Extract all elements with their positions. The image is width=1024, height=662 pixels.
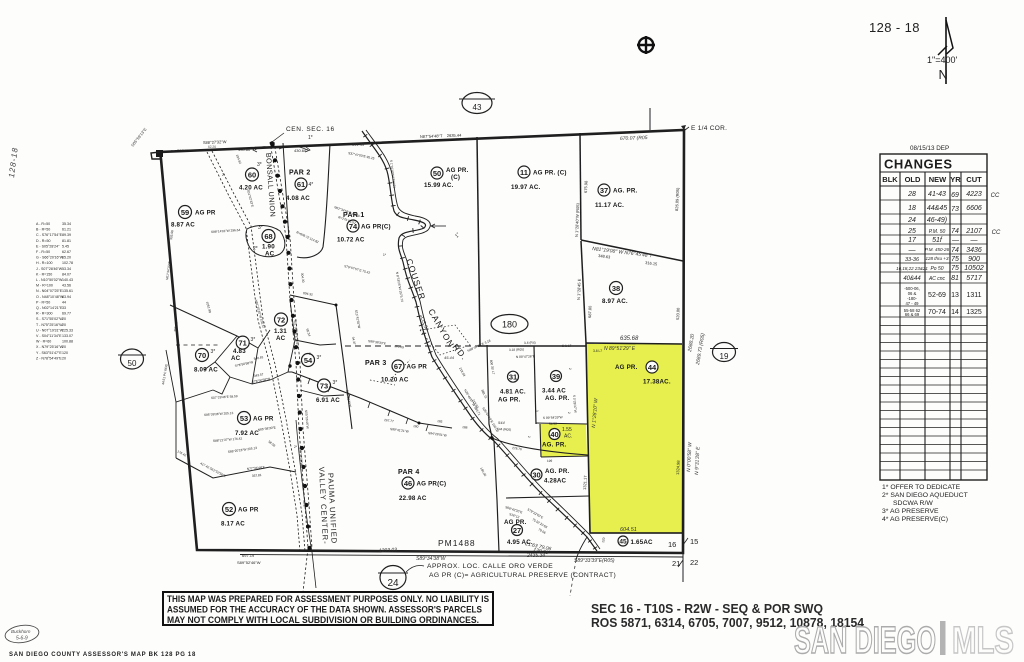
svg-text:70-74: 70-74 bbox=[928, 309, 946, 316]
svg-text:59: 59 bbox=[181, 208, 189, 217]
svg-text:72: 72 bbox=[277, 315, 285, 324]
svg-text:15: 15 bbox=[690, 537, 698, 546]
svg-text:37: 37 bbox=[600, 186, 608, 195]
svg-text:Z - N78°54'49"E: Z - N78°54'49"E bbox=[36, 356, 62, 360]
svg-text:13: 13 bbox=[951, 292, 959, 299]
svg-text:N 88°47'26"E: N 88°47'26"E bbox=[516, 354, 535, 359]
svg-text:39: 39 bbox=[552, 372, 560, 381]
svg-text:V - S04°11'34"E: V - S04°11'34"E bbox=[36, 334, 62, 338]
svg-text:11: 11 bbox=[520, 168, 528, 177]
svg-text:44: 44 bbox=[648, 363, 657, 372]
svg-text:62.26: 62.26 bbox=[208, 145, 216, 149]
svg-text:4.08 AC: 4.08 AC bbox=[286, 195, 310, 202]
svg-text:S 89°54'29"W: S 89°54'29"W bbox=[543, 415, 563, 420]
svg-text:MLS: MLS bbox=[952, 620, 1014, 662]
svg-text:20: 20 bbox=[62, 356, 66, 360]
svg-text:180: 180 bbox=[502, 320, 517, 330]
svg-text:43: 43 bbox=[473, 103, 482, 112]
svg-text:544: 544 bbox=[498, 420, 505, 425]
svg-text:4*: 4* bbox=[309, 182, 314, 188]
svg-text:1* OFFER TO DEDICATE: 1* OFFER TO DEDICATE bbox=[882, 484, 961, 491]
svg-text:43.56: 43.56 bbox=[62, 284, 71, 288]
svg-text:3*: 3* bbox=[333, 380, 338, 386]
svg-text:L - N10°50'02"W: L - N10°50'02"W bbox=[36, 278, 63, 282]
svg-text:35.34: 35.34 bbox=[62, 222, 71, 226]
svg-text:AC: AC bbox=[265, 251, 275, 258]
svg-text:3.44 AC: 3.44 AC bbox=[542, 388, 566, 395]
svg-text:16: 16 bbox=[668, 540, 676, 549]
svg-text:69: 69 bbox=[951, 192, 959, 199]
svg-text:74: 74 bbox=[951, 247, 959, 254]
svg-text:N: N bbox=[939, 67, 948, 82]
svg-text:15.99 AC.: 15.99 AC. bbox=[424, 182, 454, 189]
svg-text:G - S66°20'16"W: G - S66°20'16"W bbox=[36, 256, 64, 260]
svg-text:BLK: BLK bbox=[882, 175, 898, 184]
svg-text:3*: 3* bbox=[211, 349, 216, 355]
svg-text:675.98: 675.98 bbox=[583, 180, 588, 193]
svg-text:PAR 4: PAR 4 bbox=[398, 469, 420, 476]
svg-text:1321.17: 1321.17 bbox=[582, 475, 588, 490]
svg-text:65.20: 65.20 bbox=[62, 256, 71, 260]
svg-text:(C): (C) bbox=[451, 174, 460, 181]
svg-text:60.17: 60.17 bbox=[302, 500, 307, 509]
svg-text:53: 53 bbox=[240, 414, 248, 423]
svg-text:61: 61 bbox=[297, 180, 305, 189]
svg-text:1.65AC: 1.65AC bbox=[631, 539, 654, 546]
svg-text:Po 50: Po 50 bbox=[930, 266, 943, 272]
svg-text:128 thru +3: 128 thru +3 bbox=[926, 256, 949, 261]
svg-text:AG PR (C)= AGRICULTURAL PRESE: AG PR (C)= AGRICULTURAL PRESERVE (CONTRA… bbox=[429, 572, 616, 579]
svg-text:61.21: 61.21 bbox=[62, 228, 71, 232]
svg-text:697.19: 697.19 bbox=[242, 553, 255, 558]
svg-text:30: 30 bbox=[532, 470, 540, 479]
svg-text:AG PR. (C): AG PR. (C) bbox=[533, 170, 567, 177]
svg-text:AG PR(C): AG PR(C) bbox=[417, 481, 447, 488]
svg-text:21: 21 bbox=[672, 559, 680, 568]
svg-text:75: 75 bbox=[951, 256, 959, 263]
svg-text:PAR 2: PAR 2 bbox=[289, 170, 311, 177]
svg-text:AG. PR.: AG. PR. bbox=[545, 468, 570, 475]
svg-text:54: 54 bbox=[304, 356, 313, 365]
svg-text:81.81: 81.81 bbox=[62, 239, 71, 243]
svg-text:CEN. SEC. 16: CEN. SEC. 16 bbox=[286, 126, 335, 133]
svg-text:NEW: NEW bbox=[929, 175, 947, 184]
svg-text:17.38AC.: 17.38AC. bbox=[643, 379, 671, 386]
svg-text:1203.03: 1203.03 bbox=[379, 547, 398, 554]
svg-text:544 (R05): 544 (R05) bbox=[497, 427, 511, 432]
svg-text:70: 70 bbox=[198, 351, 206, 360]
svg-text:4.83: 4.83 bbox=[233, 348, 246, 355]
svg-text:S89°34'38"W: S89°34'38"W bbox=[416, 556, 447, 562]
svg-text:102.78: 102.78 bbox=[62, 261, 73, 265]
svg-text:520.00: 520.00 bbox=[675, 307, 681, 320]
svg-text:AG PR.: AG PR. bbox=[446, 167, 469, 174]
svg-text:81: 81 bbox=[951, 275, 959, 282]
svg-text:4* AG PRESERVE(C): 4* AG PRESERVE(C) bbox=[882, 516, 948, 523]
svg-text:260.08: 260.08 bbox=[177, 148, 190, 153]
svg-text:1.90: 1.90 bbox=[262, 244, 275, 251]
svg-text:YR: YR bbox=[950, 175, 961, 184]
svg-text:3436: 3436 bbox=[966, 247, 982, 254]
svg-text:1.55: 1.55 bbox=[562, 427, 572, 433]
svg-text:66 & 69: 66 & 69 bbox=[905, 312, 920, 317]
svg-text:—: — bbox=[951, 237, 960, 244]
svg-text:MAY NOT COMPLY WITH LOCAL SUBD: MAY NOT COMPLY WITH LOCAL SUBDIVISION OR… bbox=[167, 615, 479, 625]
svg-text:62.67: 62.67 bbox=[62, 250, 71, 254]
svg-text:10.72 AC: 10.72 AC bbox=[337, 237, 365, 244]
svg-text:430.60: 430.60 bbox=[238, 147, 251, 152]
svg-text:—: — bbox=[970, 237, 979, 244]
svg-text:41-43: 41-43 bbox=[928, 191, 946, 198]
svg-text:135.61: 135.61 bbox=[62, 289, 73, 293]
svg-text:51f: 51f bbox=[932, 237, 943, 244]
svg-text:52-69: 52-69 bbox=[928, 292, 946, 299]
svg-text:10502: 10502 bbox=[964, 265, 984, 272]
svg-text:63.94: 63.94 bbox=[62, 295, 71, 299]
svg-text:AG PR: AG PR bbox=[195, 210, 216, 217]
svg-text:44: 44 bbox=[62, 300, 66, 304]
svg-text:24: 24 bbox=[387, 578, 399, 589]
svg-text:4223: 4223 bbox=[966, 191, 982, 198]
svg-text:8.87 AC: 8.87 AC bbox=[171, 222, 195, 229]
svg-text:SAN DIEGO: SAN DIEGO bbox=[794, 620, 936, 662]
svg-text:1"=400': 1"=400' bbox=[927, 55, 957, 65]
svg-text:31: 31 bbox=[509, 373, 517, 382]
svg-text:M - R=100: M - R=100 bbox=[36, 284, 53, 288]
svg-text:THIS MAP WAS PREPARED FOR ASSE: THIS MAP WAS PREPARED FOR ASSESSMENT PUR… bbox=[167, 594, 489, 604]
svg-text:PAR 3: PAR 3 bbox=[365, 360, 387, 367]
svg-text:AG. PR.: AG. PR. bbox=[545, 395, 570, 402]
svg-text:16,18,22 23&21: 16,18,22 23&21 bbox=[896, 266, 928, 271]
svg-text:128 - 18: 128 - 18 bbox=[869, 20, 920, 35]
svg-text:S - S71°55'02"W: S - S71°55'02"W bbox=[36, 317, 63, 321]
svg-text:24: 24 bbox=[907, 217, 916, 224]
svg-text:U - N07°19'31"W: U - N07°19'31"W bbox=[36, 328, 64, 332]
svg-text:3.18 (R05): 3.18 (R05) bbox=[509, 347, 524, 352]
svg-text:50: 50 bbox=[128, 359, 137, 368]
svg-text:H - R=100: H - R=100 bbox=[36, 261, 52, 265]
svg-text:APPROX. LOC. CALLE ORO VER: APPROX. LOC. CALLE ORO VERDE bbox=[427, 563, 553, 570]
svg-text:4.81 AC.: 4.81 AC. bbox=[500, 389, 526, 396]
svg-text:40&44: 40&44 bbox=[903, 276, 921, 282]
svg-text:18: 18 bbox=[908, 205, 916, 212]
svg-text:141.43: 141.43 bbox=[352, 142, 365, 147]
svg-text:2*: 2* bbox=[253, 246, 258, 252]
svg-text:O - N48°10'48"W: O - N48°10'48"W bbox=[36, 295, 64, 299]
svg-text:4.28AC: 4.28AC bbox=[544, 478, 567, 485]
svg-text:2107: 2107 bbox=[965, 228, 983, 235]
svg-text:71: 71 bbox=[239, 338, 247, 347]
svg-text:47 - 49: 47 - 49 bbox=[905, 301, 919, 306]
svg-text:52: 52 bbox=[225, 505, 233, 514]
svg-text:08/15/13 DEP: 08/15/13 DEP bbox=[910, 145, 949, 152]
svg-text:8.09 AC: 8.09 AC bbox=[194, 367, 218, 374]
svg-text:CC: CC bbox=[991, 193, 1000, 199]
svg-text:AC.: AC. bbox=[564, 434, 572, 440]
svg-text:N 1°28'45 E: N 1°28'45 E bbox=[576, 278, 582, 300]
svg-text:AG PR.: AG PR. bbox=[498, 397, 521, 404]
svg-text:100.88: 100.88 bbox=[62, 340, 73, 344]
svg-text:140.43: 140.43 bbox=[62, 278, 73, 282]
svg-text:6.91 AC: 6.91 AC bbox=[316, 397, 340, 404]
svg-text:AC: AC bbox=[231, 355, 241, 362]
svg-text:14: 14 bbox=[951, 309, 959, 316]
svg-text:3*: 3* bbox=[258, 225, 263, 231]
svg-text:D - R=50: D - R=50 bbox=[36, 239, 50, 243]
svg-text:A - R=50: A - R=50 bbox=[36, 222, 50, 226]
svg-text:CUT: CUT bbox=[966, 175, 982, 184]
svg-text:1325: 1325 bbox=[966, 309, 982, 316]
svg-text:W - R=60: W - R=60 bbox=[36, 340, 51, 344]
svg-text:3*: 3* bbox=[251, 337, 256, 343]
svg-text:84.07: 84.07 bbox=[62, 272, 71, 276]
svg-text:N 89°51'29" E: N 89°51'29" E bbox=[604, 346, 636, 352]
svg-text:8.97 AC.: 8.97 AC. bbox=[602, 298, 628, 305]
svg-text:CC: CC bbox=[992, 230, 1001, 236]
svg-text:CHANGES: CHANGES bbox=[884, 157, 953, 172]
svg-text:3-6 (R4): 3-6 (R4) bbox=[524, 341, 536, 345]
svg-text:AC: AC bbox=[276, 335, 286, 342]
svg-text:R - R=300: R - R=300 bbox=[36, 312, 52, 316]
svg-text:45: 45 bbox=[619, 539, 627, 546]
svg-text:27: 27 bbox=[513, 526, 521, 535]
svg-text:3* AG PRESERVE: 3* AG PRESERVE bbox=[882, 508, 939, 515]
svg-text:E 1/4 COR.: E 1/4 COR. bbox=[691, 125, 727, 132]
svg-text:44&45: 44&45 bbox=[927, 205, 947, 212]
svg-text:60: 60 bbox=[248, 170, 256, 179]
svg-text:AC cnc: AC cnc bbox=[928, 276, 946, 282]
svg-text:199: 199 bbox=[547, 459, 553, 463]
svg-text:5.45: 5.45 bbox=[62, 244, 69, 248]
svg-text:11.17 AC.: 11.17 AC. bbox=[595, 202, 624, 209]
svg-text:10.20 AC: 10.20 AC bbox=[381, 377, 409, 384]
svg-text:C - S76°17'54"E: C - S76°17'54"E bbox=[36, 233, 63, 237]
svg-text:46-49): 46-49) bbox=[927, 217, 947, 224]
svg-text:Buckhorn: Buckhorn bbox=[11, 629, 31, 634]
svg-text:74: 74 bbox=[951, 228, 959, 235]
svg-text:687.80: 687.80 bbox=[587, 305, 592, 318]
svg-text:68: 68 bbox=[264, 232, 272, 241]
svg-text:20: 20 bbox=[62, 345, 66, 349]
svg-text:33-36: 33-36 bbox=[905, 257, 920, 263]
svg-text:P - R=50: P - R=50 bbox=[36, 300, 50, 304]
svg-text:AG PR: AG PR bbox=[407, 364, 428, 371]
svg-text:S89°33'39"E(R05): S89°33'39"E(R05) bbox=[574, 558, 615, 564]
svg-text:E - S05°28'24": E - S05°28'24" bbox=[36, 244, 60, 248]
svg-text:40: 40 bbox=[550, 430, 558, 439]
svg-text:Y - S63°51'47"E: Y - S63°51'47"E bbox=[36, 351, 62, 355]
svg-text:1.31: 1.31 bbox=[274, 328, 287, 335]
svg-text:73: 73 bbox=[951, 206, 959, 213]
svg-text:AG. PR.: AG. PR. bbox=[613, 188, 638, 195]
svg-text:89.39: 89.39 bbox=[62, 233, 71, 237]
svg-text:1*: 1* bbox=[308, 135, 313, 141]
svg-text:PM1488: PM1488 bbox=[438, 538, 476, 548]
svg-text:N - N04°07'25"E: N - N04°07'25"E bbox=[36, 289, 63, 293]
svg-text:133.07: 133.07 bbox=[62, 334, 73, 338]
svg-text:53.34: 53.34 bbox=[62, 267, 71, 271]
svg-text:50: 50 bbox=[433, 169, 441, 178]
svg-text:S-1 L7: S-1 L7 bbox=[562, 344, 572, 348]
svg-text:20: 20 bbox=[62, 323, 66, 327]
svg-text:AG PR.: AG PR. bbox=[615, 364, 638, 371]
svg-text:X - N79°25'16"W: X - N79°25'16"W bbox=[36, 345, 64, 349]
svg-text:K - R=150: K - R=150 bbox=[36, 272, 52, 276]
svg-text:33: 33 bbox=[62, 306, 66, 310]
svg-text:P.M. 50: P.M. 50 bbox=[929, 229, 946, 235]
svg-text:Q - N02°14'21"E: Q - N02°14'21"E bbox=[36, 306, 63, 310]
svg-text:1311: 1311 bbox=[966, 292, 981, 299]
svg-text:900: 900 bbox=[968, 256, 980, 263]
svg-text:5-6-9: 5-6-9 bbox=[16, 636, 28, 642]
svg-text:19.97 AC.: 19.97 AC. bbox=[511, 184, 541, 191]
svg-text:AG PR: AG PR bbox=[253, 416, 274, 423]
svg-text:17: 17 bbox=[908, 237, 917, 244]
svg-text:SAN DIEGO COUNTY ASSESSOR'S MA: SAN DIEGO COUNTY ASSESSOR'S MAP BK 128 P… bbox=[9, 651, 196, 658]
svg-text:73: 73 bbox=[320, 381, 328, 390]
svg-text:28: 28 bbox=[907, 191, 916, 198]
svg-text:69.77: 69.77 bbox=[62, 312, 71, 316]
svg-text:3*: 3* bbox=[317, 355, 322, 361]
svg-text:19: 19 bbox=[720, 352, 729, 361]
svg-text:670.07 (R05: 670.07 (R05 bbox=[620, 135, 648, 142]
svg-text:SEC 16 - T10S - R2W - SEQ & PO: SEC 16 - T10S - R2W - SEQ & POR SWQ bbox=[591, 601, 823, 616]
svg-text:SDCWA R/W: SDCWA R/W bbox=[893, 500, 933, 507]
svg-text:75: 75 bbox=[951, 265, 959, 272]
svg-text:22.98 AC: 22.98 AC bbox=[399, 495, 427, 502]
svg-text:180: 180 bbox=[413, 424, 419, 429]
svg-text:25: 25 bbox=[907, 228, 916, 235]
svg-text:45.44: 45.44 bbox=[444, 355, 455, 360]
svg-text:J - S07°28'46"W: J - S07°28'46"W bbox=[36, 267, 63, 271]
svg-text:T - N75°25'16"W: T - N75°25'16"W bbox=[36, 323, 63, 327]
svg-text:OLD: OLD bbox=[905, 175, 921, 184]
svg-text:0: 0 bbox=[309, 352, 311, 356]
svg-text:3*: 3* bbox=[257, 162, 262, 168]
svg-text:5717: 5717 bbox=[966, 275, 983, 282]
svg-text:604.51: 604.51 bbox=[620, 527, 637, 533]
svg-text:P.M. 450-26: P.M. 450-26 bbox=[925, 247, 949, 252]
svg-text:ASSUMED FOR THE ACCURACY OF TH: ASSUMED FOR THE ACCURACY OF THE DATA SHO… bbox=[167, 605, 482, 615]
svg-text:AG. PR.: AG. PR. bbox=[542, 442, 567, 449]
svg-text:46: 46 bbox=[404, 479, 412, 488]
svg-text:22: 22 bbox=[690, 558, 698, 567]
svg-text:F - R=50: F - R=50 bbox=[36, 250, 50, 254]
svg-text:120: 120 bbox=[62, 351, 68, 355]
svg-text:188: 188 bbox=[462, 425, 468, 430]
svg-text:2* SAN DIEGO AQUEDUCT: 2* SAN DIEGO AQUEDUCT bbox=[882, 492, 968, 499]
svg-text:20: 20 bbox=[62, 317, 66, 321]
svg-text:38: 38 bbox=[612, 284, 620, 293]
svg-text:S89°52'46"W: S89°52'46"W bbox=[237, 560, 261, 565]
svg-text:635.68: 635.68 bbox=[620, 336, 639, 342]
svg-text:225.33: 225.33 bbox=[62, 328, 73, 332]
svg-text:AG PR.: AG PR. bbox=[504, 519, 527, 526]
svg-text:67: 67 bbox=[394, 362, 402, 371]
svg-text:3-6 L7: 3-6 L7 bbox=[593, 349, 602, 353]
svg-text:185: 185 bbox=[437, 419, 443, 424]
svg-text:1324.98: 1324.98 bbox=[675, 460, 681, 475]
svg-text:AG PR(C): AG PR(C) bbox=[361, 224, 391, 231]
svg-text:AG PR: AG PR bbox=[238, 507, 259, 514]
svg-text:54.52: 54.52 bbox=[549, 422, 557, 426]
svg-text:8.17 AC: 8.17 AC bbox=[221, 521, 245, 528]
svg-text:B - R=50: B - R=50 bbox=[36, 228, 50, 232]
svg-text:6606: 6606 bbox=[966, 205, 982, 212]
svg-text:—: — bbox=[908, 247, 917, 254]
